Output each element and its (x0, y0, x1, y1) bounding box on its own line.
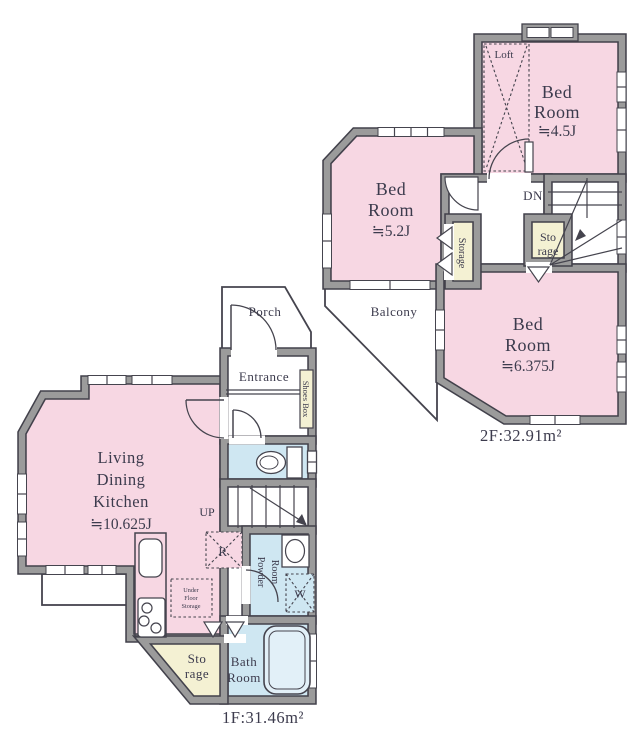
storage-side-label: Storage (456, 238, 467, 269)
bathtub (264, 626, 310, 694)
washer-label: W (294, 587, 306, 601)
ldk-label: Dining (97, 470, 146, 489)
entrance-label: Entrance (239, 369, 289, 384)
toilet-bowl (257, 452, 286, 474)
floor-plan-page: Loft Bed Room ≒4.5J DN Sto rage Storage … (0, 0, 641, 750)
bedroom45-label: Room (534, 102, 580, 122)
floor-plan-canvas: Loft Bed Room ≒4.5J DN Sto rage Storage … (0, 0, 641, 750)
under-floor-label: Under (183, 587, 198, 594)
balcony-label: Balcony (371, 304, 418, 319)
bedroom6375-size: ≒6.375J (501, 358, 555, 375)
terrace-step (42, 574, 128, 605)
powder-room-label: Room (269, 560, 280, 585)
porch-label: Porch (249, 304, 282, 319)
under-floor-label: Floor (184, 595, 197, 602)
bedroom52-label: Bed (376, 179, 407, 199)
area-label-2f: 2F:32.91m² (480, 426, 562, 445)
toilet-tank (287, 447, 302, 478)
bedroom52-size: ≒5.2J (372, 223, 410, 240)
down-label: DN (523, 188, 543, 203)
storage-1f-label: Sto (188, 651, 207, 666)
powder-room-label: Powder (255, 557, 266, 588)
under-floor-label: Storage (182, 603, 201, 610)
ldk-label: Kitchen (93, 492, 149, 511)
bedroom45-size: ≒4.5J (538, 123, 576, 140)
storage-mid-label: rage (538, 244, 559, 258)
storage-mid-label: Sto (540, 230, 556, 244)
bedroom6375-label: Room (505, 335, 551, 355)
bedroom45-label: Bed (542, 82, 573, 102)
refrigerator-label: R (218, 544, 227, 559)
ldk-size: ≒10.625J (90, 516, 152, 533)
bay-window (522, 24, 578, 41)
up-label: UP (199, 505, 215, 519)
bath-label: Bath (231, 654, 258, 669)
bedroom52-label: Room (368, 200, 414, 220)
bedroom6375-label: Bed (513, 314, 544, 334)
storage-1f-label: rage (185, 666, 209, 681)
ldk-label: Living (98, 448, 145, 467)
door-leaf-bedroom45 (525, 142, 533, 172)
kitchen-sink (139, 539, 162, 577)
bath-label: Room (227, 670, 261, 685)
area-label-1f: 1F:31.46m² (222, 708, 304, 727)
shoes-box-label: Shoes Box (301, 381, 311, 418)
loft-label: Loft (495, 49, 514, 61)
